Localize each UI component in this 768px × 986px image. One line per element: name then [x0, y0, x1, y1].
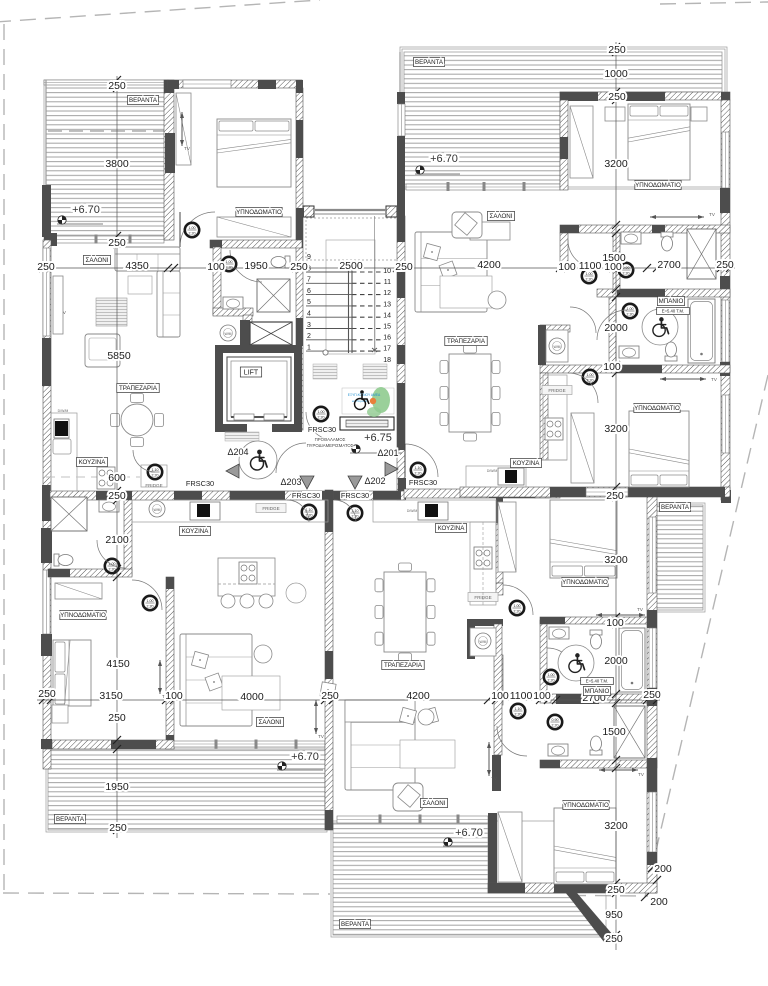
- svg-text:ΥΠΝΟΔΩΜΑΤΙΟ: ΥΠΝΟΔΩΜΑΤΙΟ: [635, 182, 681, 189]
- svg-text:100: 100: [603, 361, 621, 373]
- svg-text:18: 18: [383, 357, 391, 364]
- svg-text:200: 200: [650, 896, 668, 908]
- svg-text:TV: TV: [637, 607, 643, 612]
- svg-text:Δ203: Δ203: [280, 477, 301, 487]
- svg-text:3200: 3200: [604, 158, 628, 170]
- svg-text:FRSC30: FRSC30: [409, 478, 437, 487]
- svg-text:D/W/M: D/W/M: [487, 469, 498, 473]
- svg-text:7: 7: [307, 277, 311, 284]
- svg-text:1.10: 1.10: [415, 466, 422, 470]
- svg-text:ΣΑΛΟΝΙ: ΣΑΛΟΝΙ: [423, 800, 446, 807]
- svg-text:+6.70: +6.70: [291, 751, 319, 763]
- svg-text:ΤΡΑΠΕΖΑΡΙΑ: ΤΡΑΠΕΖΑΡΙΑ: [119, 385, 158, 392]
- svg-text:1.00: 1.00: [514, 604, 521, 608]
- svg-text:Ε=5.40 Τ.Μ.: Ε=5.40 Τ.Μ.: [586, 679, 608, 684]
- svg-text:D/W/M: D/W/M: [407, 509, 418, 513]
- svg-text:4200: 4200: [406, 690, 430, 702]
- svg-text:6: 6: [307, 288, 311, 295]
- svg-text:1950: 1950: [105, 781, 129, 793]
- svg-text:ΜΠΑΝΙΟ: ΜΠΑΝΙΟ: [585, 688, 610, 695]
- svg-text:1500: 1500: [602, 726, 626, 738]
- svg-text:1: 1: [307, 344, 311, 351]
- svg-text:1950: 1950: [244, 260, 268, 272]
- svg-text:3800: 3800: [105, 158, 129, 170]
- svg-text:2000: 2000: [604, 655, 628, 667]
- svg-text:1.00: 1.00: [587, 373, 594, 377]
- svg-text:3200: 3200: [604, 820, 628, 832]
- svg-text:2.20: 2.20: [623, 271, 630, 275]
- svg-text:ΥΠΝΟΔΩΜΑΤΙΟ: ΥΠΝΟΔΩΜΑΤΙΟ: [236, 209, 282, 216]
- svg-text:1100: 1100: [510, 690, 533, 702]
- svg-text:2.20: 2.20: [147, 604, 154, 608]
- svg-text:ΥΠΝΟΔΩΜΑΤΙΟ: ΥΠΝΟΔΩΜΑΤΙΟ: [60, 612, 106, 619]
- svg-text:950: 950: [605, 909, 623, 921]
- svg-text:ΣΑΛΟΝΙ: ΣΑΛΟΝΙ: [259, 719, 282, 726]
- svg-text:ΜΠΑΝΙΟ: ΜΠΑΝΙΟ: [659, 298, 684, 305]
- svg-text:LIFT: LIFT: [244, 370, 259, 377]
- svg-text:5: 5: [307, 299, 311, 306]
- svg-text:2500: 2500: [339, 260, 363, 272]
- svg-text:15: 15: [383, 324, 391, 331]
- svg-text:100: 100: [491, 690, 509, 702]
- svg-text:FRIDGE: FRIDGE: [262, 506, 279, 511]
- svg-text:4200: 4200: [477, 259, 501, 271]
- svg-text:1.00: 1.00: [586, 272, 593, 276]
- svg-text:1.00: 1.00: [318, 410, 325, 414]
- svg-text:ΤΡΑΠΕΖΑΡΙΑ: ΤΡΑΠΕΖΑΡΙΑ: [384, 662, 423, 669]
- svg-text:TV: TV: [318, 734, 324, 739]
- svg-text:250: 250: [290, 261, 308, 273]
- svg-text:ΥΠΝΟΔΩΜΑΤΙΟ: ΥΠΝΟΔΩΜΑΤΙΟ: [563, 802, 609, 809]
- svg-text:+6.75: +6.75: [364, 432, 392, 444]
- svg-text:3150: 3150: [99, 690, 123, 702]
- svg-text:Ε=5.40 Τ.Μ.: Ε=5.40 Τ.Μ.: [662, 309, 684, 314]
- svg-text:ΣΑΛΟΝΙ: ΣΑΛΟΝΙ: [86, 257, 109, 264]
- svg-text:ΚΟΥΖΙΝΑ: ΚΟΥΖΙΝΑ: [438, 525, 466, 532]
- svg-text:250: 250: [607, 884, 625, 896]
- svg-text:ΤΡΑΠΕΖΑΡΙΑ: ΤΡΑΠΕΖΑΡΙΑ: [447, 338, 486, 345]
- svg-text:1.00: 1.00: [548, 673, 555, 677]
- svg-text:4000: 4000: [240, 691, 264, 703]
- svg-text:ΒΕΡΑΝΤΑ: ΒΕΡΑΝΤΑ: [415, 59, 444, 66]
- svg-text:2100: 2100: [105, 534, 129, 546]
- svg-text:16: 16: [383, 335, 391, 342]
- svg-text:TV: TV: [184, 146, 190, 151]
- svg-text:100: 100: [207, 261, 225, 273]
- svg-text:D/W/M: D/W/M: [58, 409, 69, 413]
- svg-text:ΕΞΥΠ.ΚΟΙΝΟΥ ΑΜΕΑ: ΕΞΥΠ.ΚΟΙΝΟΥ ΑΜΕΑ: [348, 393, 381, 397]
- svg-text:ΚΟΥΖΙΝΑ: ΚΟΥΖΙΝΑ: [513, 460, 541, 467]
- svg-text:250: 250: [608, 91, 626, 103]
- svg-text:2.20: 2.20: [514, 609, 521, 613]
- svg-text:3: 3: [307, 322, 311, 329]
- svg-text:600: 600: [108, 472, 126, 484]
- svg-text:1.10: 1.10: [515, 707, 522, 711]
- svg-text:ΒΕΡΑΝΤΑ: ΒΕΡΑΝΤΑ: [129, 97, 158, 104]
- svg-text:2.20: 2.20: [627, 312, 634, 316]
- svg-text:TV: TV: [491, 776, 497, 781]
- svg-text:W/M: W/M: [554, 345, 561, 349]
- svg-text:2: 2: [307, 333, 311, 340]
- svg-text:TV: TV: [709, 212, 715, 217]
- svg-text:ΠΡΟΘΑΛΑΜΟΣ: ΠΡΟΘΑΛΑΜΟΣ: [315, 437, 346, 442]
- svg-text:250: 250: [606, 490, 624, 502]
- svg-text:ΒΕΡΑΝΤΑ: ΒΕΡΑΝΤΑ: [56, 816, 85, 823]
- svg-text:1.10: 1.10: [352, 509, 359, 513]
- svg-text:ΚΟΥΖΙΝΑ: ΚΟΥΖΙΝΑ: [182, 528, 210, 535]
- svg-text:2.20: 2.20: [586, 277, 593, 281]
- svg-text:1000: 1000: [604, 68, 628, 80]
- svg-text:250: 250: [605, 933, 623, 945]
- svg-text:250: 250: [608, 44, 626, 56]
- svg-text:3200: 3200: [604, 554, 628, 566]
- svg-text:2700: 2700: [657, 259, 681, 271]
- svg-text:250: 250: [38, 688, 56, 700]
- svg-text:1.10: 1.10: [152, 468, 159, 472]
- svg-text:2.20: 2.20: [318, 415, 325, 419]
- svg-text:1.00: 1.00: [147, 599, 154, 603]
- svg-text:2.20: 2.20: [152, 473, 159, 477]
- svg-text:ΠΥΡΟΔΙΑΜΕΡΙΣΜΑΤΟΣ: ΠΥΡΟΔΙΑΜΕΡΙΣΜΑΤΟΣ: [307, 443, 354, 448]
- svg-text:3200: 3200: [604, 423, 628, 435]
- svg-text:10: 10: [383, 268, 391, 275]
- svg-text:100: 100: [606, 617, 624, 629]
- svg-text:W/M: W/M: [225, 332, 232, 336]
- svg-text:FRSC30: FRSC30: [341, 491, 369, 500]
- svg-text:250: 250: [716, 259, 734, 271]
- svg-text:250: 250: [108, 80, 126, 92]
- svg-text:TV: TV: [638, 772, 644, 777]
- svg-text:2.20: 2.20: [415, 471, 422, 475]
- svg-text:ΚΟΥΖΙΝΑ: ΚΟΥΖΙΝΑ: [79, 459, 107, 466]
- svg-text:11: 11: [384, 279, 391, 286]
- svg-text:ΥΠΝΟΔΩΜΑΤΙΟ: ΥΠΝΟΔΩΜΑΤΙΟ: [634, 405, 680, 412]
- svg-text:250: 250: [37, 261, 55, 273]
- svg-text:100: 100: [533, 690, 551, 702]
- svg-text:FRIDGE: FRIDGE: [145, 483, 162, 488]
- svg-text:FRSC30: FRSC30: [292, 491, 320, 500]
- svg-text:1.00: 1.00: [226, 260, 233, 264]
- svg-text:FRSC30: FRSC30: [308, 425, 336, 434]
- svg-text:1100: 1100: [579, 260, 602, 272]
- svg-text:250: 250: [108, 712, 126, 724]
- svg-text:W/M: W/M: [154, 508, 161, 512]
- svg-text:12: 12: [383, 290, 391, 297]
- svg-text:5850: 5850: [107, 350, 131, 362]
- svg-text:FRIDGE: FRIDGE: [548, 388, 565, 393]
- svg-text:Δ204: Δ204: [227, 447, 248, 457]
- svg-text:2.20: 2.20: [548, 678, 555, 682]
- svg-text:250: 250: [643, 689, 661, 701]
- svg-text:250: 250: [395, 261, 413, 273]
- svg-text:4350: 4350: [125, 260, 149, 272]
- svg-text:17: 17: [383, 346, 391, 353]
- svg-text:14: 14: [383, 312, 391, 319]
- svg-text:2.20: 2.20: [552, 723, 559, 727]
- svg-text:1500: 1500: [602, 252, 626, 264]
- svg-text:200: 200: [654, 863, 672, 875]
- svg-text:13: 13: [383, 301, 391, 308]
- svg-text:+6.70: +6.70: [72, 204, 100, 216]
- svg-text:100: 100: [165, 690, 183, 702]
- svg-text:2000: 2000: [604, 322, 628, 334]
- svg-text:W/M: W/M: [480, 640, 487, 644]
- svg-text:+6.70: +6.70: [430, 153, 458, 165]
- svg-text:250: 250: [321, 690, 339, 702]
- svg-text:9: 9: [307, 254, 311, 261]
- svg-text:4: 4: [307, 311, 311, 318]
- svg-text:FRSC30: FRSC30: [186, 479, 214, 488]
- svg-text:2.20: 2.20: [306, 513, 313, 517]
- svg-text:TV: TV: [711, 377, 717, 382]
- svg-text:1.00: 1.00: [189, 226, 196, 230]
- svg-text:2.20: 2.20: [515, 712, 522, 716]
- svg-text:Δ202: Δ202: [364, 476, 385, 486]
- svg-text:ΒΕΡΑΝΤΑ: ΒΕΡΑΝΤΑ: [341, 921, 370, 928]
- svg-text:2.20: 2.20: [189, 231, 196, 235]
- svg-text:0.90: 0.90: [552, 718, 559, 722]
- svg-text:+6.70: +6.70: [455, 827, 483, 839]
- svg-text:250: 250: [108, 490, 126, 502]
- svg-text:4150: 4150: [106, 658, 130, 670]
- svg-text:100: 100: [558, 261, 576, 273]
- svg-text:2.20: 2.20: [226, 265, 233, 269]
- svg-text:ΣΑΛΟΝΙ: ΣΑΛΟΝΙ: [490, 213, 513, 220]
- svg-text:1.00: 1.00: [627, 307, 634, 311]
- svg-text:250: 250: [109, 822, 127, 834]
- svg-text:ΥΠΝΟΔΩΜΑΤΙΟ: ΥΠΝΟΔΩΜΑΤΙΟ: [562, 579, 608, 586]
- svg-text:ΒΕΡΑΝΤΑ: ΒΕΡΑΝΤΑ: [661, 504, 690, 511]
- svg-text:250: 250: [108, 237, 126, 249]
- svg-text:Δ201: Δ201: [377, 448, 398, 458]
